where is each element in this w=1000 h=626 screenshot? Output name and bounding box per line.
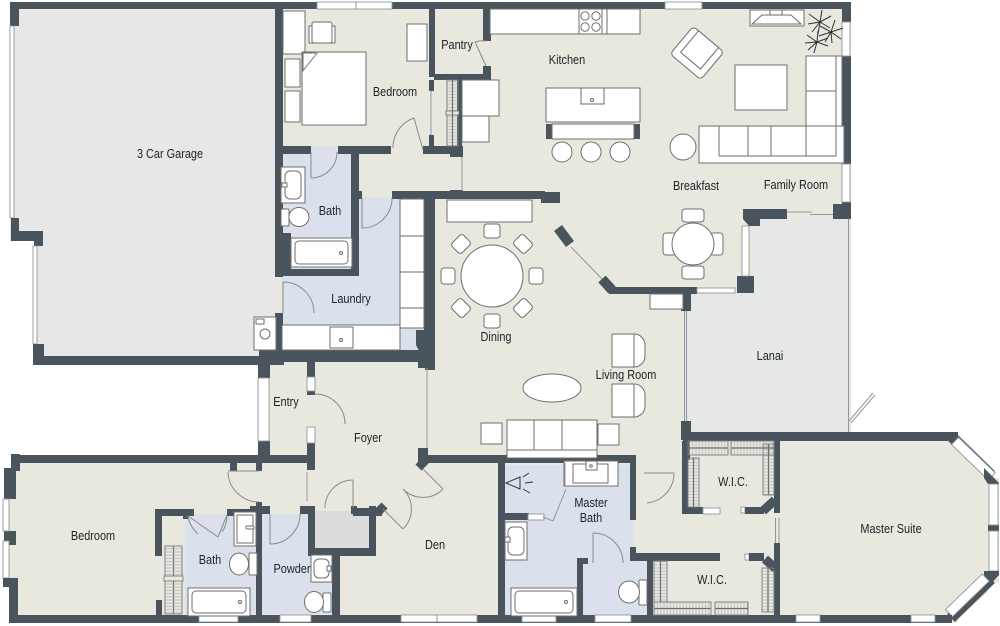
svg-text:W.I.C.: W.I.C. [718,474,748,489]
svg-text:Bedroom: Bedroom [71,528,115,543]
svg-text:Bath: Bath [580,510,602,525]
svg-text:Bedroom: Bedroom [373,84,417,99]
svg-text:Foyer: Foyer [354,430,382,445]
svg-text:Master Suite: Master Suite [860,521,922,536]
svg-text:Living Room: Living Room [596,367,657,382]
svg-text:Breakfast: Breakfast [673,178,720,193]
svg-text:Bath: Bath [199,552,221,567]
svg-text:Bath: Bath [319,203,341,218]
svg-text:3 Car Garage: 3 Car Garage [137,146,203,161]
svg-text:Kitchen: Kitchen [549,52,585,67]
svg-text:Laundry: Laundry [331,291,370,306]
svg-text:Powder: Powder [273,561,310,576]
svg-text:Entry: Entry [273,394,298,409]
svg-text:W.I.C.: W.I.C. [697,572,727,587]
svg-text:Pantry: Pantry [441,37,473,52]
svg-text:Dining: Dining [481,329,512,344]
svg-text:Master: Master [574,495,607,510]
svg-text:Family Room: Family Room [764,177,828,192]
svg-text:Den: Den [425,537,445,552]
svg-text:Lanai: Lanai [757,348,784,363]
